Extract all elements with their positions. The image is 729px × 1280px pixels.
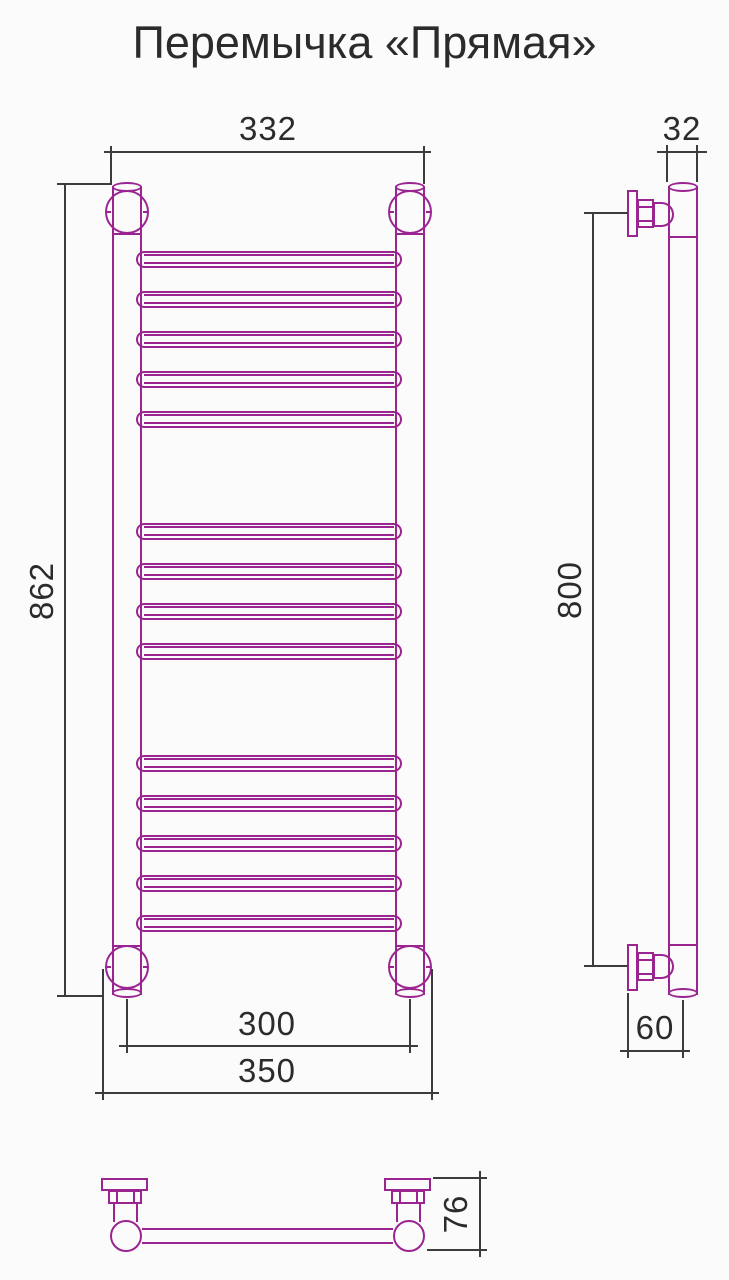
rung-core (144, 606, 394, 616)
bottom-right-nut-facet (416, 1190, 418, 1204)
bottom-right-stem (396, 1203, 421, 1222)
bottom-left-nut-facet (116, 1190, 118, 1204)
bracket-center-mark (426, 966, 431, 968)
rung (136, 755, 402, 772)
rung (136, 371, 402, 388)
rung-core (144, 798, 394, 808)
rung (136, 563, 402, 580)
bracket-center-mark (106, 211, 111, 213)
tube-collar-line (668, 944, 698, 946)
rung-core (144, 646, 394, 656)
rung-core (144, 414, 394, 424)
dim-350-ext-right (431, 969, 433, 1100)
front-right-tube (395, 186, 425, 995)
tube-collar-line (112, 233, 142, 235)
bracket-center-mark (106, 966, 111, 968)
rung (136, 795, 402, 812)
bracket-center-mark (143, 211, 148, 213)
bottom-left-nut-facet (133, 1190, 135, 1204)
dim-800-tick-bottom (584, 965, 628, 967)
bottom-right-tube-section (393, 1220, 425, 1252)
tube-collar-line (395, 233, 425, 235)
rung-core (144, 254, 394, 264)
drawing-canvas: Перемычка «Прямая» (0, 0, 729, 1280)
front-left-tube (112, 186, 142, 995)
side-bottom-nut-facet (639, 959, 652, 961)
rung-core (144, 334, 394, 344)
dim-76-line (479, 1171, 481, 1257)
dim-350-label: 350 (217, 1053, 317, 1089)
rung (136, 915, 402, 932)
dim-32-label: 32 (632, 111, 729, 147)
rung (136, 603, 402, 620)
dim-60-line (620, 1050, 690, 1052)
dim-862-tick-bottom (57, 995, 104, 997)
rung-core (144, 374, 394, 384)
front-right-tube-bottom-cap (395, 988, 425, 998)
bracket-center-mark (389, 966, 394, 968)
bottom-left-stem (113, 1203, 138, 1222)
rung-core (144, 294, 394, 304)
side-bottom-nut (637, 952, 654, 981)
dim-862-line (64, 184, 66, 997)
side-bottom-nut-facet (639, 973, 652, 975)
tube-collar-line (112, 945, 142, 947)
dim-332-line (104, 151, 431, 153)
side-tube (668, 186, 698, 995)
dim-32-line (657, 151, 707, 153)
dim-332-label: 332 (218, 111, 318, 147)
side-tube-bottom-cap (668, 988, 698, 998)
dim-300-line (119, 1045, 418, 1047)
side-top-nut-facet (639, 206, 652, 208)
dim-800-line (592, 213, 594, 967)
rung (136, 251, 402, 268)
dim-60-label: 60 (605, 1010, 705, 1046)
bottom-right-nut-facet (399, 1190, 401, 1204)
rung (136, 835, 402, 852)
drawing-title: Перемычка «Прямая» (0, 18, 729, 68)
side-top-nut-facet (639, 220, 652, 222)
dim-76-label: 76 (438, 1164, 474, 1264)
rung (136, 411, 402, 428)
rung (136, 643, 402, 660)
rung (136, 291, 402, 308)
bracket-center-mark (426, 211, 431, 213)
dim-862-tick-top (57, 183, 112, 185)
dim-800-label: 800 (552, 540, 588, 640)
rung (136, 523, 402, 540)
bottom-right-nut (391, 1190, 425, 1204)
bracket-center-mark (389, 211, 394, 213)
rung-core (144, 566, 394, 576)
tube-collar-line (668, 236, 698, 238)
bracket-center-mark (143, 966, 148, 968)
dim-350-line (95, 1092, 439, 1094)
rung-core (144, 878, 394, 888)
rung-core (144, 838, 394, 848)
side-top-nut (637, 199, 654, 228)
rung-core (144, 526, 394, 536)
tube-collar-line (395, 945, 425, 947)
rung-core (144, 918, 394, 928)
dim-800-tick-top (584, 212, 628, 214)
dim-862-label: 862 (24, 541, 60, 641)
rung (136, 875, 402, 892)
rung (136, 331, 402, 348)
dim-300-label: 300 (217, 1006, 317, 1042)
side-tube-top-cap (668, 182, 698, 192)
bottom-crossbar (142, 1228, 393, 1244)
front-left-tube-bottom-cap (112, 988, 142, 998)
bottom-left-nut (108, 1190, 142, 1204)
dim-350-ext-left (102, 969, 104, 1100)
bottom-left-tube-section (110, 1220, 142, 1252)
rung-core (144, 758, 394, 768)
